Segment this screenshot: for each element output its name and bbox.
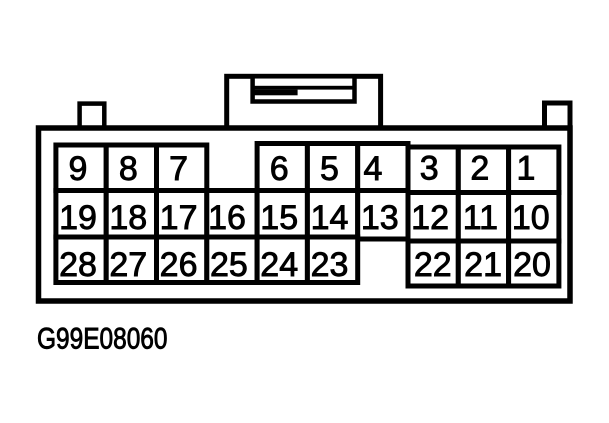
svg-text:8: 8 xyxy=(119,150,138,188)
svg-text:23: 23 xyxy=(311,246,349,284)
svg-text:13: 13 xyxy=(361,199,399,237)
svg-text:27: 27 xyxy=(109,246,147,284)
svg-text:20: 20 xyxy=(513,246,551,284)
svg-text:26: 26 xyxy=(160,246,198,284)
svg-text:16: 16 xyxy=(208,199,246,237)
svg-text:4: 4 xyxy=(364,150,383,188)
svg-text:18: 18 xyxy=(109,199,147,237)
svg-text:14: 14 xyxy=(311,199,349,237)
svg-text:5: 5 xyxy=(320,150,339,188)
svg-text:12: 12 xyxy=(411,199,449,237)
svg-text:21: 21 xyxy=(464,246,502,284)
svg-text:25: 25 xyxy=(210,246,248,284)
svg-text:24: 24 xyxy=(260,246,298,284)
svg-text:11: 11 xyxy=(463,199,498,237)
svg-text:19: 19 xyxy=(59,199,97,237)
svg-text:G99E08060: G99E08060 xyxy=(37,323,168,356)
svg-text:7: 7 xyxy=(169,150,188,188)
svg-text:22: 22 xyxy=(414,246,452,284)
svg-text:2: 2 xyxy=(470,150,489,188)
svg-text:3: 3 xyxy=(420,150,439,188)
svg-text:9: 9 xyxy=(69,150,88,188)
svg-text:1: 1 xyxy=(517,150,536,188)
svg-text:10: 10 xyxy=(512,199,550,237)
svg-text:28: 28 xyxy=(59,246,97,284)
svg-text:6: 6 xyxy=(270,150,289,188)
svg-text:17: 17 xyxy=(160,199,198,237)
svg-text:15: 15 xyxy=(260,199,298,237)
